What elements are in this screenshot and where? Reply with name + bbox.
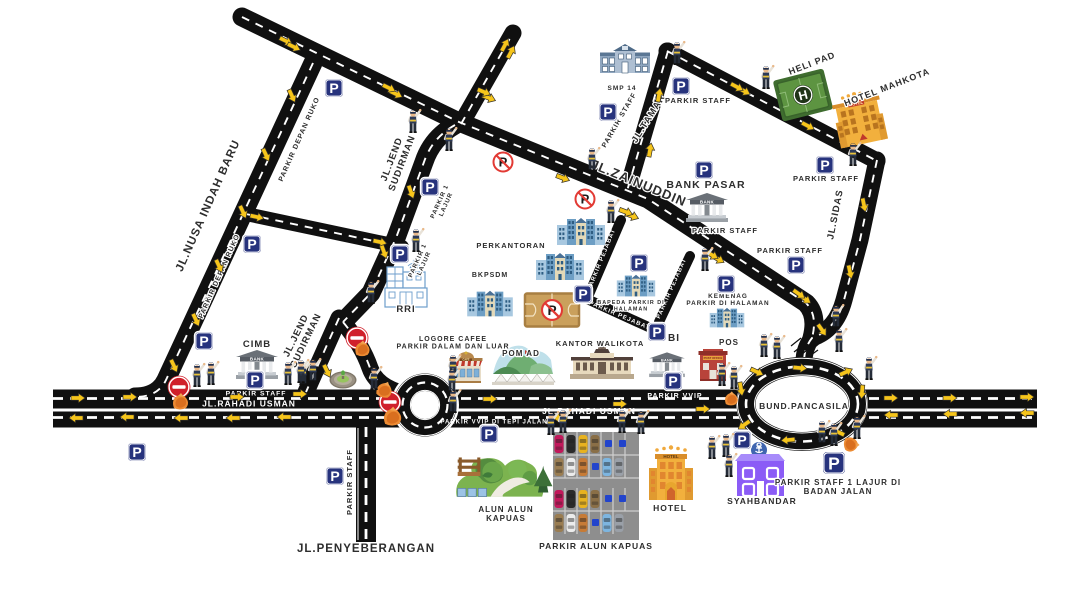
svg-text:PARKIR STAFF: PARKIR STAFF bbox=[793, 174, 859, 183]
svg-text:BADAN JALAN: BADAN JALAN bbox=[804, 487, 873, 496]
svg-text:PARKIR STAFF: PARKIR STAFF bbox=[757, 246, 823, 255]
svg-text:PARKIR ALUN KAPUAS: PARKIR ALUN KAPUAS bbox=[539, 541, 653, 551]
svg-text:HALAMAN: HALAMAN bbox=[614, 307, 648, 313]
svg-text:PARKIR STAFF 1 LAJUR DI: PARKIR STAFF 1 LAJUR DI bbox=[775, 478, 901, 487]
svg-text:KAPUAS: KAPUAS bbox=[486, 514, 526, 523]
svg-text:PARKIR STAFF: PARKIR STAFF bbox=[692, 226, 758, 235]
svg-text:PARKIR DALAM DAN LUAR: PARKIR DALAM DAN LUAR bbox=[396, 344, 509, 351]
svg-text:JL.PENYEBERANGAN: JL.PENYEBERANGAN bbox=[297, 543, 435, 555]
svg-text:BI: BI bbox=[668, 333, 680, 344]
svg-text:BAPEDA PARKIR DI: BAPEDA PARKIR DI bbox=[597, 300, 664, 306]
svg-text:PARKIR STAFF: PARKIR STAFF bbox=[665, 96, 731, 105]
svg-text:PARKIR STAFF: PARKIR STAFF bbox=[345, 449, 354, 515]
svg-text:CAFE: CAFE bbox=[462, 358, 469, 362]
svg-text:SYAHBANDAR: SYAHBANDAR bbox=[727, 496, 797, 506]
svg-text:POM AD: POM AD bbox=[502, 349, 540, 358]
svg-text:HOTEL MAHKOTA: HOTEL MAHKOTA bbox=[843, 66, 932, 108]
svg-text:LOGORE CAFEE: LOGORE CAFEE bbox=[419, 336, 487, 343]
svg-text:JL.SIDAS: JL.SIDAS bbox=[825, 189, 845, 241]
svg-text:BANK PASAR: BANK PASAR bbox=[666, 179, 745, 191]
svg-text:RRI: RRI bbox=[396, 304, 415, 315]
svg-text:POS: POS bbox=[719, 338, 739, 347]
svg-text:CIMB: CIMB bbox=[243, 339, 271, 350]
svg-text:PARKIR DI HALAMAN: PARKIR DI HALAMAN bbox=[686, 300, 769, 307]
svg-text:POST OFFICE: POST OFFICE bbox=[704, 356, 723, 360]
svg-text:SMP 14: SMP 14 bbox=[607, 85, 636, 92]
svg-text:HOTEL: HOTEL bbox=[653, 503, 687, 513]
svg-text:ALUN ALUN: ALUN ALUN bbox=[478, 505, 533, 514]
svg-text:BKPSDM: BKPSDM bbox=[472, 272, 508, 279]
svg-text:PARKIR VVIP: PARKIR VVIP bbox=[647, 393, 702, 400]
svg-text:BUND.PANCASILA: BUND.PANCASILA bbox=[759, 401, 849, 411]
svg-text:JL.RAHADI USMAN: JL.RAHADI USMAN bbox=[202, 399, 296, 409]
svg-text:HOTEL: HOTEL bbox=[663, 454, 679, 459]
svg-text:PARKIR PEJABAT: PARKIR PEJABAT bbox=[656, 257, 688, 320]
svg-text:PERKANTORAN: PERKANTORAN bbox=[476, 241, 545, 250]
svg-text:KANTOR WALIKOTA: KANTOR WALIKOTA bbox=[556, 339, 644, 348]
